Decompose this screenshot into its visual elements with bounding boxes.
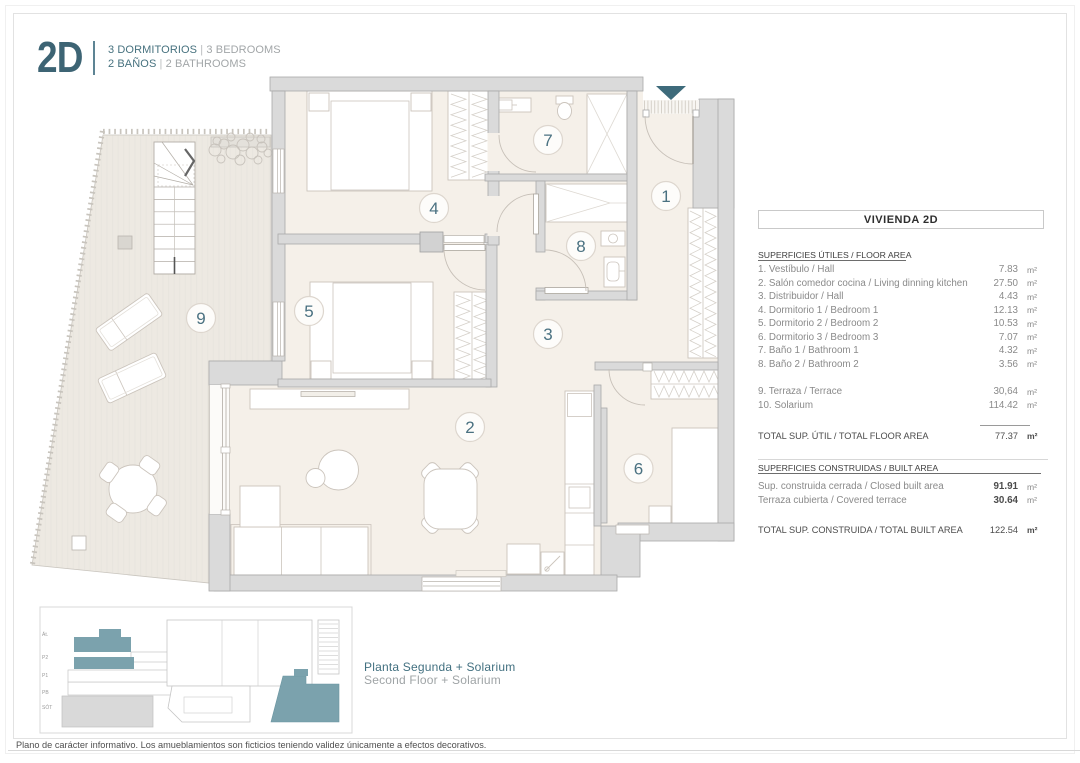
svg-text:PB: PB bbox=[42, 690, 49, 696]
svg-text:P2: P2 bbox=[42, 655, 48, 661]
svg-text:5: 5 bbox=[304, 302, 313, 321]
svg-text:P1: P1 bbox=[42, 673, 48, 679]
svg-text:6: 6 bbox=[634, 460, 643, 479]
svg-text:8: 8 bbox=[576, 237, 585, 256]
svg-text:7: 7 bbox=[543, 131, 552, 150]
svg-text:2: 2 bbox=[465, 418, 474, 437]
svg-text:Át.: Át. bbox=[42, 631, 48, 638]
svg-text:SÓT: SÓT bbox=[42, 704, 52, 711]
svg-text:4: 4 bbox=[429, 199, 438, 218]
svg-text:9: 9 bbox=[196, 309, 205, 328]
svg-text:3: 3 bbox=[543, 325, 552, 344]
svg-text:1: 1 bbox=[661, 187, 670, 206]
